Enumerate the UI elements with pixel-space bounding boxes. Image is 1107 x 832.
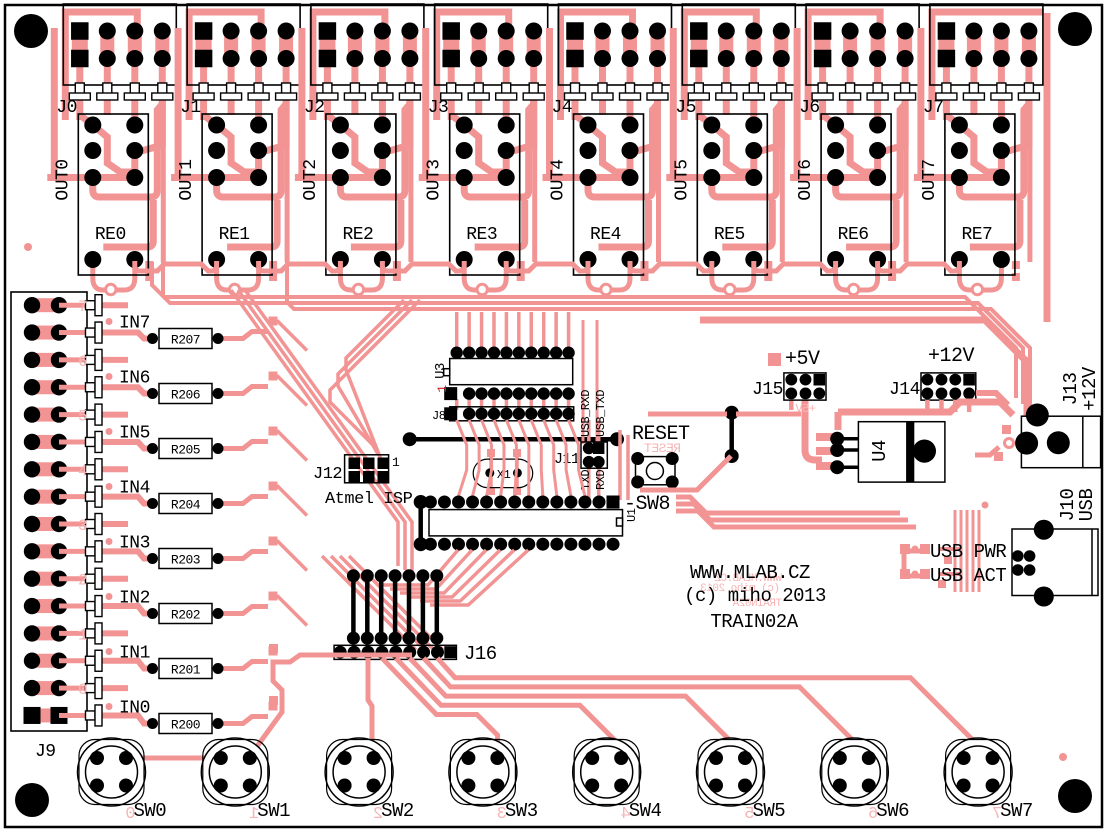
- svg-text:R204: R204: [171, 498, 201, 513]
- svg-text:J7: J7: [923, 98, 944, 118]
- svg-text:IN5: IN5: [119, 424, 150, 444]
- svg-text:R205: R205: [171, 443, 200, 458]
- svg-text:RE3: RE3: [466, 225, 497, 245]
- svg-text:R206: R206: [171, 388, 200, 403]
- svg-text:OUT3: OUT3: [425, 159, 445, 200]
- svg-text:OUT0: OUT0: [53, 159, 73, 200]
- svg-text:OUT4: OUT4: [549, 159, 569, 200]
- svg-text:R200: R200: [171, 718, 200, 733]
- svg-text:IN3: IN3: [119, 534, 150, 554]
- svg-text:5: 5: [78, 408, 87, 426]
- svg-text:2: 2: [78, 572, 87, 590]
- svg-text:SW1: SW1: [257, 800, 290, 822]
- svg-text:IN0: IN0: [119, 699, 150, 719]
- svg-text:J6: J6: [799, 98, 820, 118]
- svg-text:+5V: +5V: [785, 348, 820, 371]
- svg-text:J14: J14: [889, 380, 920, 400]
- svg-text:J5: J5: [675, 98, 696, 118]
- svg-text:R202: R202: [171, 608, 200, 623]
- svg-text:SW4: SW4: [629, 800, 662, 822]
- svg-text:3: 3: [78, 517, 87, 535]
- svg-text:U3: U3: [433, 363, 449, 379]
- svg-text:1: 1: [392, 455, 400, 470]
- svg-text:OUT7: OUT7: [920, 159, 940, 200]
- svg-text:1: 1: [435, 385, 450, 393]
- svg-text:R201: R201: [171, 663, 201, 678]
- svg-text:J8: J8: [432, 409, 446, 423]
- svg-text:0: 0: [78, 681, 87, 699]
- svg-text:IN6: IN6: [119, 369, 150, 389]
- svg-text:J15: J15: [752, 380, 783, 400]
- svg-text:+12V: +12V: [1079, 366, 1101, 411]
- svg-text:J16: J16: [464, 643, 497, 665]
- svg-text:7: 7: [78, 298, 87, 316]
- svg-text:OUT5: OUT5: [672, 159, 692, 200]
- svg-text:RXD: RXD: [594, 470, 608, 490]
- svg-text:IN7: IN7: [119, 314, 150, 334]
- svg-text:OUT1: OUT1: [177, 159, 197, 200]
- svg-text:USB: USB: [1076, 489, 1098, 522]
- svg-text:OUT6: OUT6: [796, 159, 816, 200]
- svg-text:RE7: RE7: [961, 225, 992, 245]
- svg-text:RE2: RE2: [342, 225, 373, 245]
- svg-text:1: 1: [78, 626, 87, 644]
- svg-text:J0: J0: [56, 98, 77, 118]
- svg-text:USB_TXD: USB_TXD: [594, 390, 608, 437]
- svg-text:U4: U4: [869, 440, 891, 462]
- svg-text:J3: J3: [428, 98, 449, 118]
- svg-text:SW0: SW0: [134, 800, 167, 822]
- svg-text:J9: J9: [35, 742, 56, 762]
- svg-text:SW2: SW2: [381, 800, 414, 822]
- svg-text:WWW.MLAB.CZ: WWW.MLAB.CZ: [690, 562, 810, 584]
- svg-text:6: 6: [78, 353, 87, 371]
- svg-text:J4: J4: [552, 98, 573, 118]
- svg-text:USB ACT: USB ACT: [930, 565, 1006, 587]
- svg-text:TRAIN02A: TRAIN02A: [710, 611, 798, 633]
- svg-text:J1: J1: [180, 98, 201, 118]
- svg-text:RE6: RE6: [838, 225, 869, 245]
- svg-text:SW5: SW5: [753, 800, 786, 822]
- svg-text:SW6: SW6: [876, 800, 909, 822]
- svg-text:USB PWR: USB PWR: [930, 541, 1006, 563]
- svg-text:Atmel ISP: Atmel ISP: [325, 490, 413, 509]
- svg-text:IN4: IN4: [119, 479, 150, 499]
- svg-text:(c) miho 2013: (c) miho 2013: [684, 585, 826, 607]
- svg-text:RE1: RE1: [219, 225, 250, 245]
- svg-text:RE5: RE5: [714, 225, 745, 245]
- svg-text:IN1: IN1: [119, 644, 150, 664]
- svg-text:J2: J2: [304, 98, 325, 118]
- svg-text:R203: R203: [171, 553, 200, 568]
- svg-text:+12V: +12V: [928, 345, 975, 368]
- svg-text:RE4: RE4: [590, 225, 621, 245]
- svg-text:U1: U1: [625, 508, 639, 522]
- svg-text:R207: R207: [171, 333, 200, 348]
- svg-text:OUT2: OUT2: [301, 159, 321, 200]
- svg-text:USB_RXD: USB_RXD: [579, 390, 593, 437]
- svg-text:4: 4: [78, 462, 87, 480]
- svg-text:J12: J12: [313, 465, 342, 484]
- svg-text:RE0: RE0: [95, 225, 126, 245]
- svg-text:IN2: IN2: [119, 589, 150, 609]
- svg-text:SW7: SW7: [1000, 800, 1033, 822]
- svg-text:SW3: SW3: [505, 800, 538, 822]
